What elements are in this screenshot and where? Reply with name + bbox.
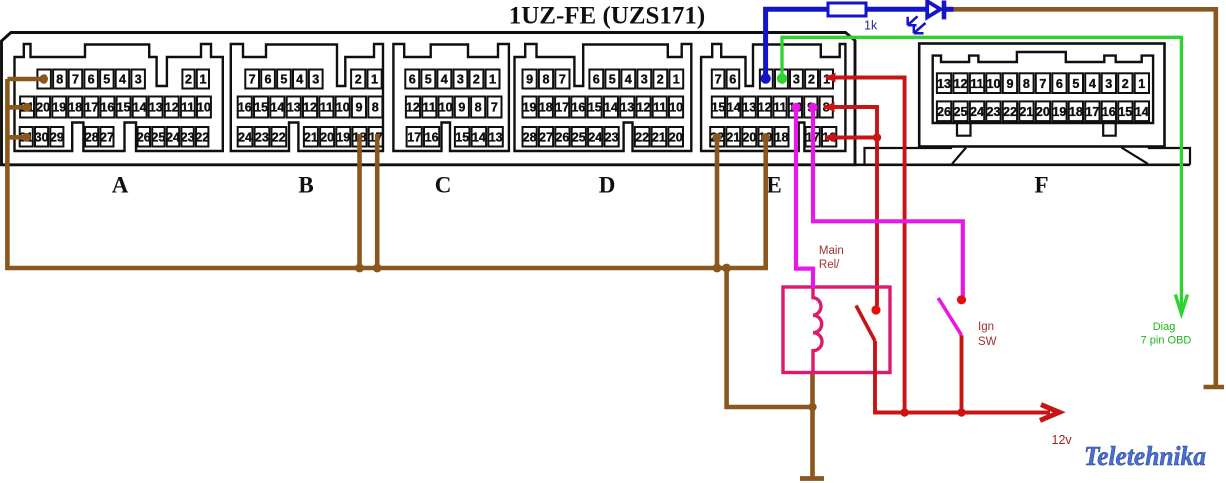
svg-text:23: 23	[986, 105, 1000, 119]
svg-text:15: 15	[711, 101, 725, 115]
svg-text:8: 8	[372, 101, 379, 115]
svg-text:8: 8	[542, 73, 549, 87]
svg-text:20: 20	[742, 130, 756, 144]
svg-text:17: 17	[1085, 105, 1099, 119]
svg-text:27: 27	[100, 130, 114, 144]
svg-text:7: 7	[249, 73, 256, 87]
svg-text:16: 16	[238, 101, 252, 115]
svg-text:4: 4	[1089, 77, 1096, 91]
svg-text:6: 6	[593, 73, 600, 87]
svg-text:1: 1	[489, 73, 496, 87]
svg-text:16: 16	[100, 101, 114, 115]
svg-text:5: 5	[103, 73, 110, 87]
svg-text:7: 7	[491, 101, 498, 115]
svg-text:3: 3	[641, 73, 648, 87]
svg-text:28: 28	[523, 130, 537, 144]
svg-text:F: F	[1034, 173, 1048, 198]
svg-text:24: 24	[588, 130, 602, 144]
svg-text:2: 2	[808, 73, 815, 87]
svg-text:12: 12	[406, 101, 420, 115]
svg-text:23: 23	[181, 130, 195, 144]
svg-text:3: 3	[135, 73, 142, 87]
svg-text:19: 19	[52, 101, 66, 115]
svg-text:7: 7	[715, 73, 722, 87]
svg-text:5: 5	[609, 73, 616, 87]
svg-text:22: 22	[272, 130, 286, 144]
svg-text:20: 20	[36, 101, 50, 115]
svg-text:19: 19	[1052, 105, 1066, 119]
svg-text:1: 1	[199, 73, 206, 87]
svg-text:12v: 12v	[1052, 433, 1073, 447]
svg-text:14: 14	[727, 101, 741, 115]
svg-text:2: 2	[355, 73, 362, 87]
svg-text:10: 10	[439, 101, 453, 115]
svg-text:25: 25	[572, 130, 586, 144]
svg-text:9: 9	[526, 73, 533, 87]
svg-text:14: 14	[472, 130, 486, 144]
svg-text:12: 12	[758, 101, 772, 115]
svg-text:17: 17	[84, 101, 98, 115]
svg-text:21: 21	[1019, 105, 1033, 119]
svg-text:5: 5	[1072, 77, 1079, 91]
svg-text:7: 7	[72, 73, 79, 87]
svg-text:13: 13	[937, 77, 951, 91]
svg-text:13: 13	[287, 101, 301, 115]
svg-text:9: 9	[355, 101, 362, 115]
svg-text:26: 26	[137, 130, 151, 144]
svg-text:22: 22	[195, 130, 209, 144]
svg-text:9: 9	[458, 101, 465, 115]
svg-text:1: 1	[371, 73, 378, 87]
svg-text:D: D	[599, 173, 616, 198]
svg-text:15: 15	[116, 101, 130, 115]
svg-text:6: 6	[729, 73, 736, 87]
svg-text:Main: Main	[819, 245, 844, 257]
svg-text:24: 24	[166, 130, 180, 144]
svg-text:21: 21	[652, 130, 666, 144]
svg-text:16: 16	[425, 130, 439, 144]
svg-text:22: 22	[1003, 105, 1017, 119]
svg-text:15: 15	[254, 101, 268, 115]
svg-text:25: 25	[953, 105, 967, 119]
svg-text:11: 11	[320, 101, 333, 115]
svg-text:26: 26	[937, 105, 951, 119]
svg-text:7: 7	[559, 73, 566, 87]
svg-text:11: 11	[181, 101, 194, 115]
svg-text:5: 5	[425, 73, 432, 87]
svg-text:4: 4	[119, 73, 126, 87]
svg-text:13: 13	[620, 101, 634, 115]
svg-text:23: 23	[605, 130, 619, 144]
svg-text:17: 17	[407, 130, 421, 144]
svg-text:11: 11	[773, 101, 786, 115]
svg-text:13: 13	[149, 101, 163, 115]
svg-text:18: 18	[774, 130, 788, 144]
svg-text:25: 25	[151, 130, 165, 144]
svg-text:7: 7	[1039, 77, 1046, 91]
svg-text:3: 3	[1105, 77, 1112, 91]
svg-text:1UZ-FE (UZS171): 1UZ-FE (UZS171)	[509, 3, 706, 30]
svg-text:15: 15	[1118, 105, 1132, 119]
svg-text:15: 15	[455, 130, 469, 144]
svg-text:12: 12	[303, 101, 317, 115]
svg-text:17: 17	[555, 101, 569, 115]
svg-text:21: 21	[726, 130, 740, 144]
svg-text:6: 6	[409, 73, 416, 87]
svg-text:8: 8	[56, 73, 63, 87]
svg-text:27: 27	[539, 130, 553, 144]
svg-text:19: 19	[336, 130, 350, 144]
svg-text:14: 14	[270, 101, 284, 115]
svg-text:Ign: Ign	[978, 321, 994, 333]
svg-text:14: 14	[1135, 105, 1149, 119]
svg-text:A: A	[112, 173, 129, 198]
svg-text:5: 5	[280, 73, 287, 87]
svg-text:Diag: Diag	[1153, 321, 1176, 333]
svg-text:SW: SW	[978, 336, 997, 348]
svg-text:20: 20	[320, 130, 334, 144]
svg-text:30: 30	[35, 130, 49, 144]
svg-text:18: 18	[68, 101, 82, 115]
svg-text:Rel/: Rel/	[819, 259, 840, 271]
svg-text:23: 23	[255, 130, 269, 144]
svg-text:2: 2	[657, 73, 664, 87]
svg-text:18: 18	[539, 101, 553, 115]
svg-text:28: 28	[85, 130, 99, 144]
svg-text:14: 14	[604, 101, 618, 115]
svg-text:10: 10	[336, 101, 350, 115]
svg-text:22: 22	[635, 130, 649, 144]
svg-text:1: 1	[1138, 77, 1145, 91]
svg-text:19: 19	[522, 101, 536, 115]
svg-text:24: 24	[238, 130, 252, 144]
svg-text:B: B	[298, 173, 313, 198]
svg-text:4: 4	[625, 73, 632, 87]
svg-text:16: 16	[571, 101, 585, 115]
svg-text:1: 1	[673, 73, 680, 87]
svg-text:3: 3	[793, 73, 800, 87]
svg-text:2: 2	[185, 73, 192, 87]
svg-text:21: 21	[304, 130, 318, 144]
svg-text:Teletehnika: Teletehnika	[1084, 441, 1206, 471]
svg-text:15: 15	[588, 101, 602, 115]
svg-text:14: 14	[133, 101, 147, 115]
svg-text:16: 16	[1102, 105, 1116, 119]
svg-text:6: 6	[1056, 77, 1063, 91]
svg-text:12: 12	[953, 77, 967, 91]
svg-text:13: 13	[742, 101, 756, 115]
svg-text:8: 8	[475, 101, 482, 115]
svg-text:11: 11	[970, 77, 983, 91]
svg-text:9: 9	[1006, 77, 1013, 91]
svg-text:7 pin OBD: 7 pin OBD	[1141, 335, 1192, 347]
svg-text:29: 29	[50, 130, 64, 144]
svg-text:2: 2	[473, 73, 480, 87]
svg-text:1k: 1k	[864, 19, 878, 33]
svg-text:12: 12	[165, 101, 179, 115]
svg-text:6: 6	[264, 73, 271, 87]
svg-text:11: 11	[653, 101, 666, 115]
svg-text:3: 3	[312, 73, 319, 87]
svg-text:4: 4	[296, 73, 303, 87]
svg-text:10: 10	[197, 101, 211, 115]
svg-text:6: 6	[88, 73, 95, 87]
svg-text:20: 20	[669, 130, 683, 144]
svg-text:11: 11	[423, 101, 436, 115]
svg-text:24: 24	[970, 105, 984, 119]
svg-text:10: 10	[669, 101, 683, 115]
svg-text:18: 18	[1069, 105, 1083, 119]
svg-text:8: 8	[1023, 77, 1030, 91]
svg-text:4: 4	[441, 73, 448, 87]
svg-text:3: 3	[457, 73, 464, 87]
svg-text:12: 12	[636, 101, 650, 115]
svg-text:2: 2	[1122, 77, 1129, 91]
svg-text:13: 13	[489, 130, 503, 144]
svg-text:E: E	[766, 173, 781, 198]
svg-text:C: C	[435, 173, 452, 198]
svg-text:20: 20	[1036, 105, 1050, 119]
svg-text:26: 26	[555, 130, 569, 144]
svg-text:10: 10	[986, 77, 1000, 91]
